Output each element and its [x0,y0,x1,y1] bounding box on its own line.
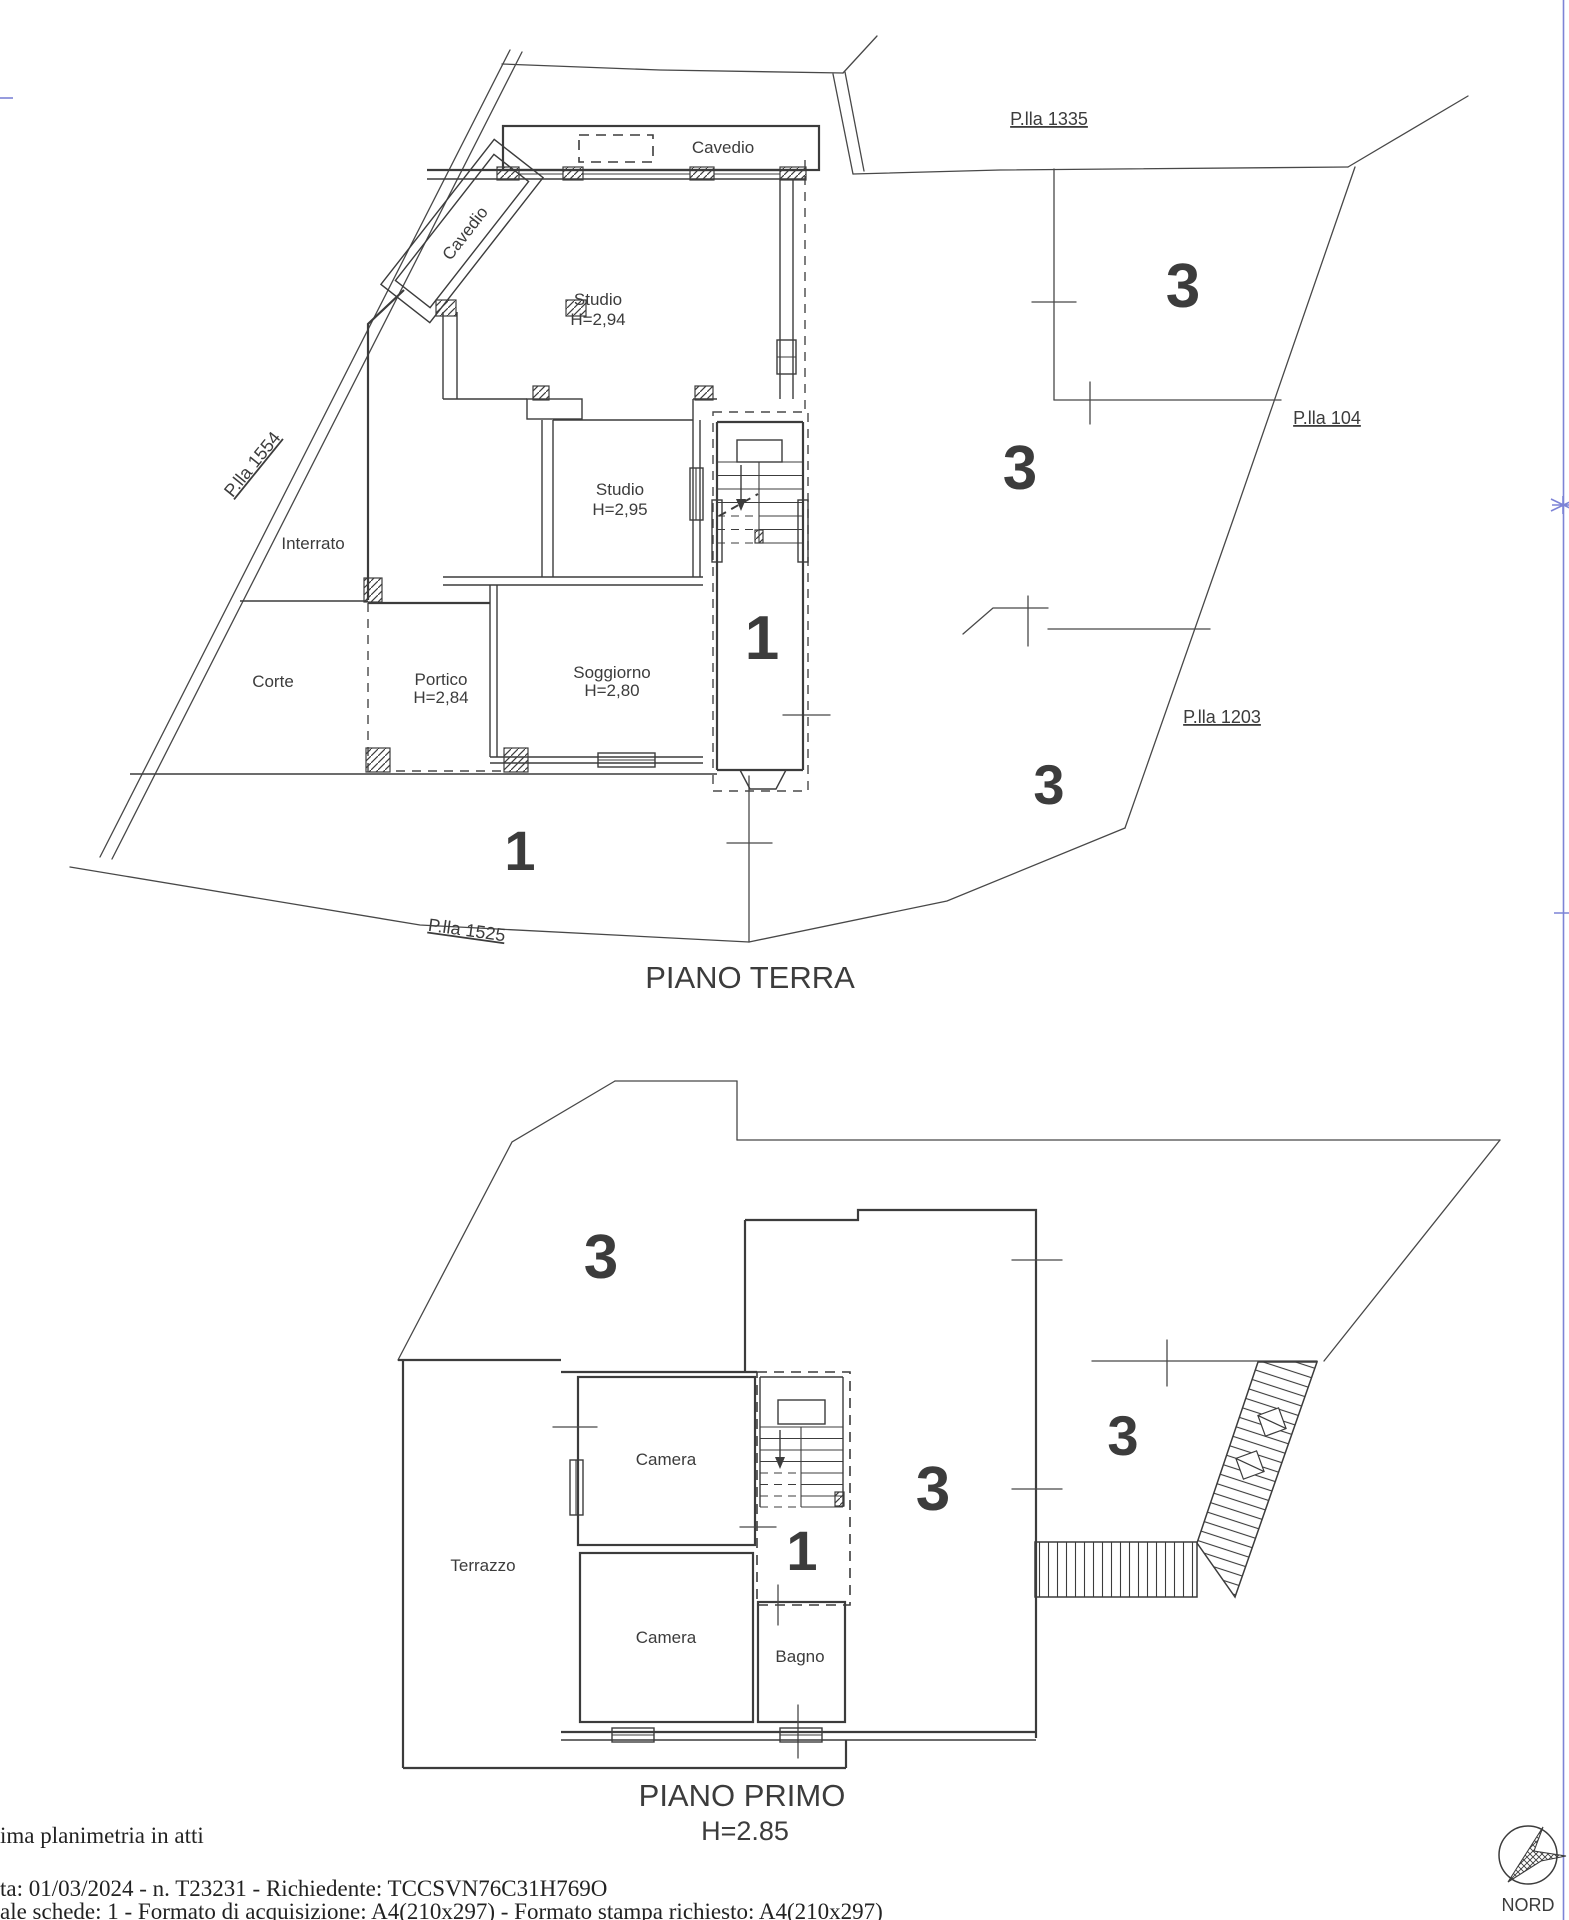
label-portico-height: H=2,84 [413,688,468,707]
cavedio-dashed-opening [579,135,653,162]
subaltern-1-stair-ff: 1 [786,1519,817,1582]
label-bagno: Bagno [775,1647,824,1666]
parcel-label-1203: P.lla 1203 [1183,707,1261,727]
subaltern-1-stair-gf: 1 [745,604,779,673]
subaltern-3-ne-gf: 3 [1166,252,1200,321]
footer-line-1: ima planimetria in atti [0,1823,204,1848]
staircase-ground [717,440,803,543]
staircase-first [760,1377,844,1507]
label-studio-a-height: H=2,94 [570,310,625,329]
label-camera-a: Camera [636,1450,697,1469]
frame-registration-mark [1551,496,1569,514]
label-cavedio-shaft: Cavedio [439,203,492,264]
ground-floor-title: PIANO TERRA [645,960,855,995]
building-walls-first [398,1210,1317,1768]
label-portico: Portico [415,670,468,689]
footer-line-2: ta: 01/03/2024 - n. T23231 - Richiedente… [0,1876,607,1901]
walkway-hatched [1035,1542,1197,1597]
label-soggiorno: Soggiorno [573,663,651,682]
external-stair-hatched [1197,1362,1317,1597]
first-floor-title: PIANO PRIMO [639,1778,846,1813]
subaltern-3-se-gf: 3 [1033,753,1064,816]
label-studio-a: Studio [574,290,622,309]
label-cavedio-top: Cavedio [692,138,754,157]
label-terrazzo: Terrazzo [450,1556,515,1575]
label-studio-b-height: H=2,95 [592,500,647,519]
compass-arrow-icon [1508,1827,1566,1882]
subaltern-1-court-gf: 1 [504,819,535,882]
north-compass: NORD [1499,1826,1566,1915]
label-corte: Corte [252,672,294,691]
label-interrato: Interrato [281,534,344,553]
footer-line-3: ale schede: 1 - Formato di acquisizione:… [0,1899,883,1920]
cavedio-box [503,126,819,170]
floorplan-drawing: Cavedio Cavedio Studio H=2,94 Studio H=2… [0,0,1569,1920]
subaltern-3-nw-ff: 3 [584,1223,618,1292]
parcel-label-1335: P.lla 1335 [1010,109,1088,129]
label-soggiorno-height: H=2,80 [584,681,639,700]
first-floor-plan: Camera Camera Bagno Terrazzo 1 3 3 3 PIA… [398,1081,1500,1846]
compass-label: NORD [1502,1895,1555,1915]
cadastral-sheet: Cavedio Cavedio Studio H=2,94 Studio H=2… [0,0,1569,1920]
subaltern-3-e-gf: 3 [1003,434,1037,503]
subaltern-3-main-ff: 3 [916,1455,950,1524]
parcel-boundaries-first [398,1081,1500,1386]
parcel-label-1554: P.lla 1554 [220,428,284,501]
parcel-label-1525: P.lla 1525 [427,915,507,946]
parcel-label-104: P.lla 104 [1293,408,1361,428]
subaltern-3-e-ff: 3 [1107,1404,1138,1467]
ground-floor-plan: Cavedio Cavedio Studio H=2,94 Studio H=2… [70,36,1468,995]
label-camera-b: Camera [636,1628,697,1647]
first-floor-height-note: H=2.85 [701,1816,789,1846]
label-studio-b: Studio [596,480,644,499]
